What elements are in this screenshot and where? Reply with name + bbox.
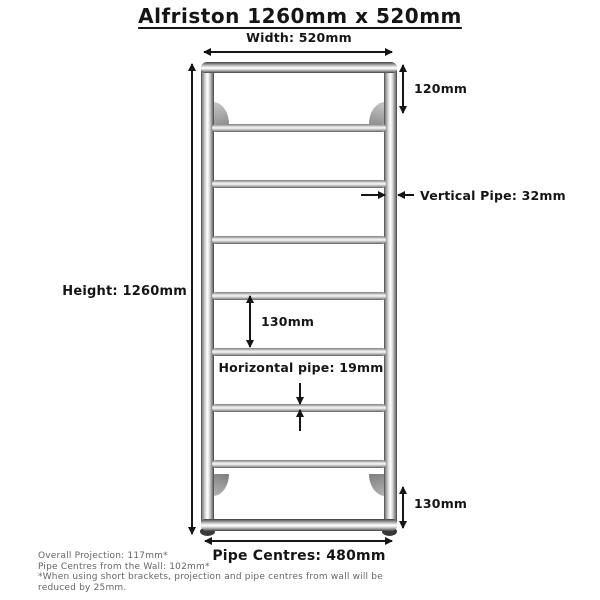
footnote-pipe-centres-wall: Pipe Centres from the Wall: 102mm* bbox=[38, 562, 416, 573]
frame-bar-bottom bbox=[201, 519, 397, 531]
horizontal-rung bbox=[212, 460, 386, 468]
height-dimension-arrow bbox=[191, 64, 193, 534]
width-dimension-label: Width: 520mm bbox=[201, 30, 397, 45]
diagram-canvas: Alfriston 1260mm x 520mm Width: 520mm He… bbox=[0, 0, 600, 600]
width-dimension-arrow bbox=[204, 51, 392, 53]
horizontal-pipe-arrow-down bbox=[299, 383, 301, 404]
pipe-centres-dimension-arrow bbox=[205, 540, 392, 542]
wall-bracket-top-right bbox=[369, 102, 385, 124]
top-gap-dimension-arrow bbox=[402, 65, 404, 113]
rung-spacing-dimension-arrow bbox=[249, 296, 251, 347]
frame-bar-top bbox=[201, 62, 397, 73]
horizontal-pipe-arrow-up bbox=[299, 410, 301, 431]
horizontal-rung bbox=[212, 124, 386, 132]
top-gap-dimension-label: 120mm bbox=[414, 81, 467, 96]
bottom-gap-dimension-label: 130mm bbox=[414, 496, 467, 511]
horizontal-rung bbox=[212, 292, 386, 300]
horizontal-rung bbox=[212, 236, 386, 244]
horizontal-rung bbox=[212, 348, 386, 356]
wall-bracket-top-left bbox=[213, 102, 229, 124]
horizontal-rung bbox=[212, 180, 386, 188]
vertical-pipe-dimension-label: Vertical Pipe: 32mm bbox=[420, 188, 566, 203]
bottom-gap-dimension-arrow bbox=[402, 487, 404, 528]
rung-spacing-dimension-label: 130mm bbox=[261, 314, 314, 329]
footnote-short-brackets: *When using short brackets, projection a… bbox=[38, 572, 416, 593]
wall-bracket-bottom-right bbox=[369, 474, 385, 496]
height-dimension-label: Height: 1260mm bbox=[55, 284, 187, 299]
horizontal-pipe-dimension-label: Horizontal pipe: 19mm bbox=[201, 360, 401, 375]
vertical-pipe-arrow-right bbox=[398, 194, 414, 196]
footnote-overall-projection: Overall Projection: 117mm* bbox=[38, 551, 416, 562]
page-title: Alfriston 1260mm x 520mm bbox=[0, 4, 600, 28]
wall-bracket-bottom-left bbox=[213, 474, 229, 496]
footnotes: Overall Projection: 117mm* Pipe Centres … bbox=[38, 551, 416, 593]
vertical-pipe-arrow-left bbox=[361, 194, 385, 196]
